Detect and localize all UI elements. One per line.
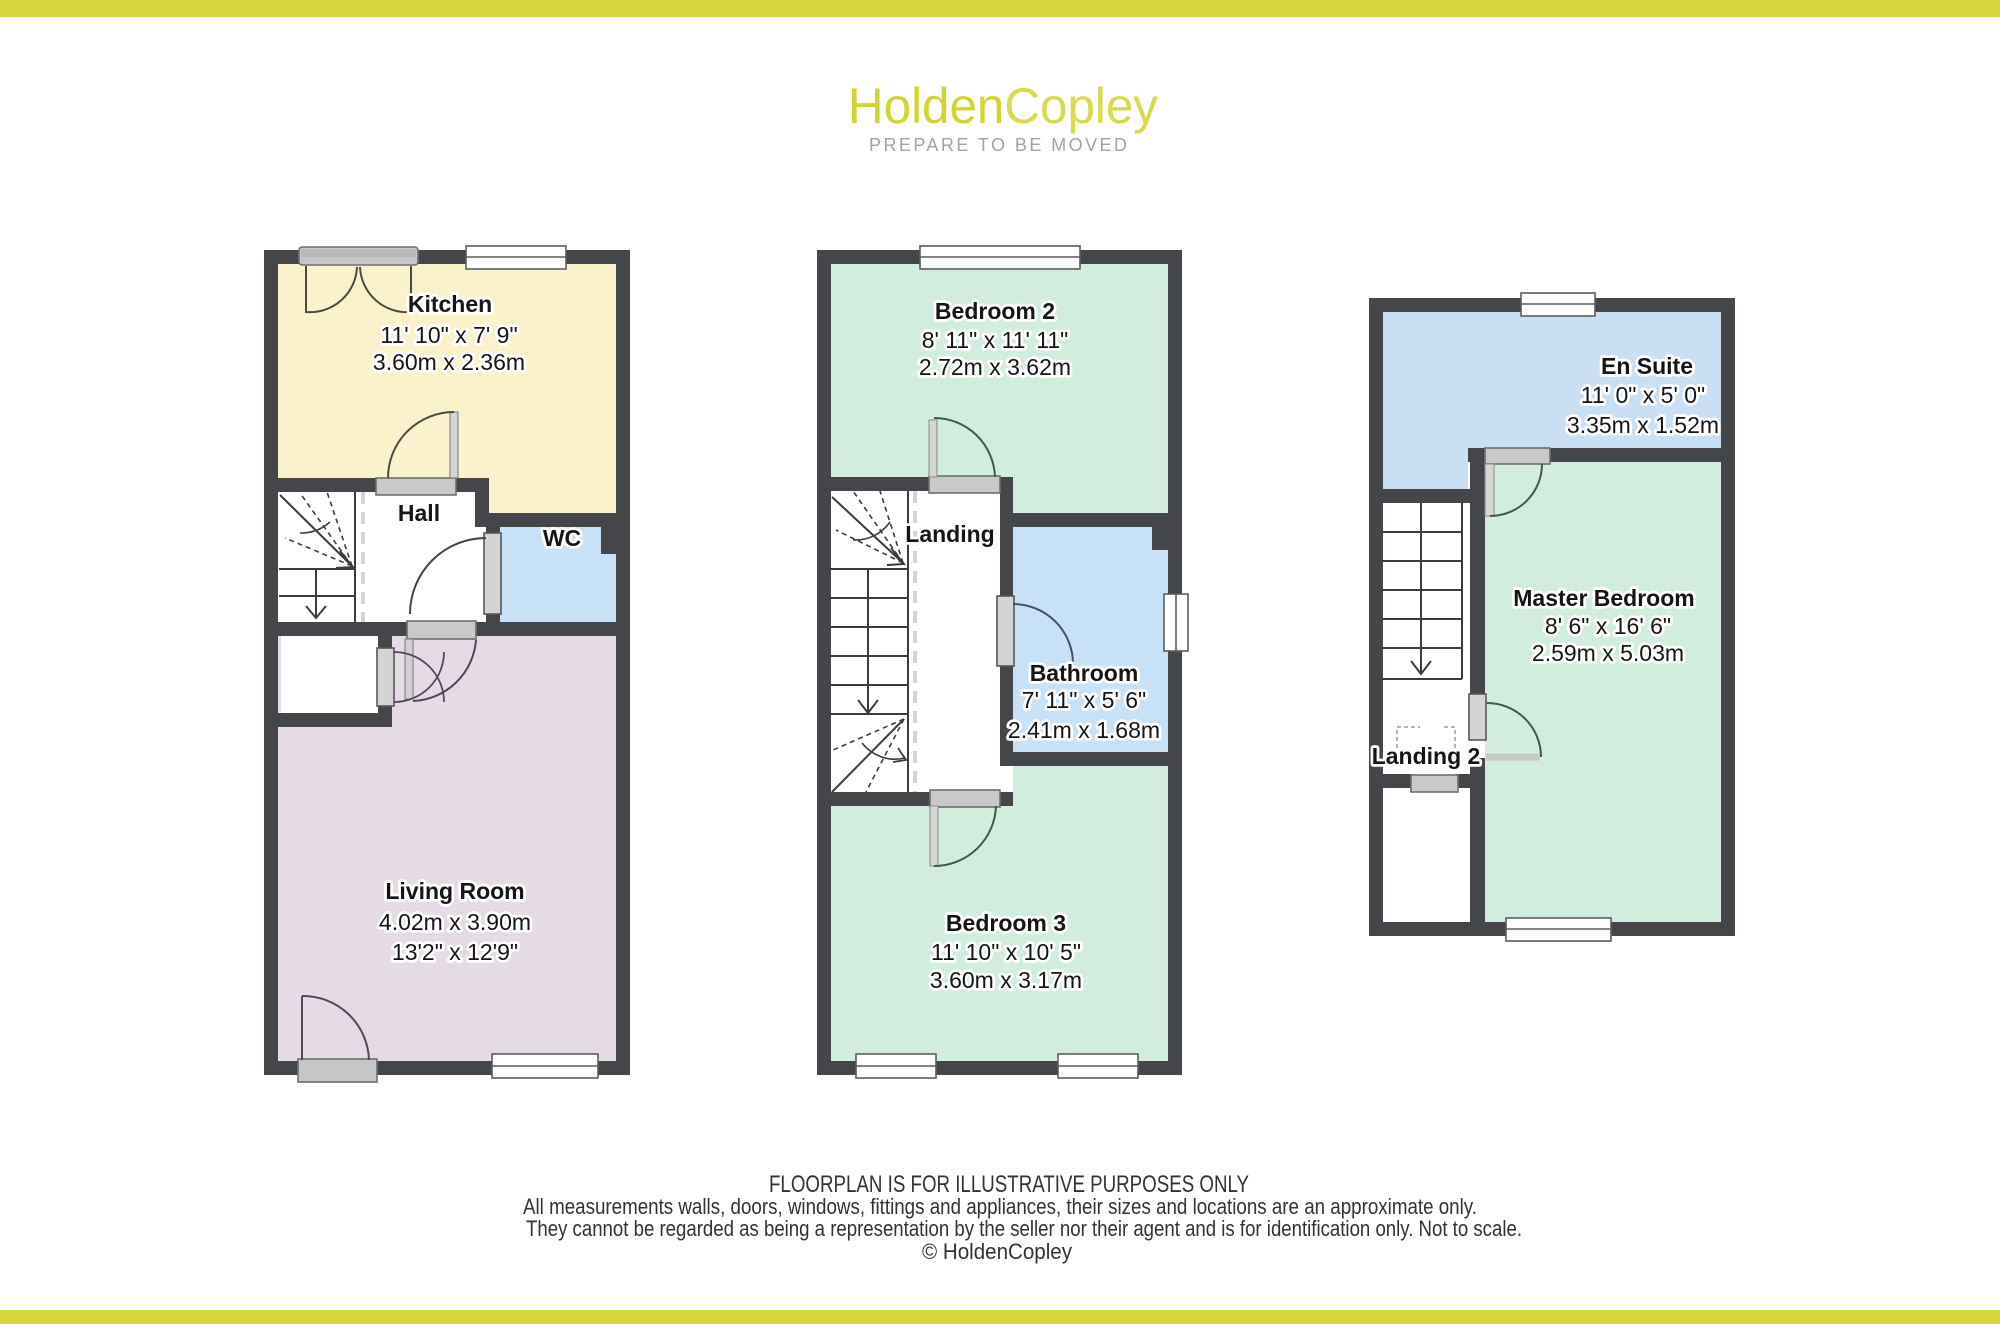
svg-text:Bedroom 2: Bedroom 2 — [935, 298, 1055, 324]
svg-text:8' 6" x 16' 6": 8' 6" x 16' 6" — [1545, 613, 1671, 639]
svg-text:En Suite: En Suite — [1601, 353, 1693, 379]
svg-text:Hall: Hall — [398, 500, 440, 526]
svg-text:PREPARE TO BE MOVED: PREPARE TO BE MOVED — [869, 135, 1127, 155]
svg-text:3.60m x 3.17m: 3.60m x 3.17m — [930, 967, 1082, 993]
svg-text:Bathroom: Bathroom — [1030, 660, 1139, 686]
svg-text:8' 11" x 11' 11": 8' 11" x 11' 11" — [922, 327, 1069, 353]
svg-text:2.41m x 1.68m: 2.41m x 1.68m — [1008, 717, 1160, 743]
svg-text:Living Room: Living Room — [385, 878, 524, 904]
svg-text:Kitchen: Kitchen — [408, 291, 492, 317]
svg-text:13'2" x 12'9": 13'2" x 12'9" — [392, 939, 518, 965]
svg-text:2.59m x 5.03m: 2.59m x 5.03m — [1532, 640, 1684, 666]
svg-text:4.02m x 3.90m: 4.02m x 3.90m — [379, 909, 531, 935]
svg-text:HoldenCopley: HoldenCopley — [848, 78, 1158, 134]
svg-text:Landing 2: Landing 2 — [1372, 743, 1481, 769]
svg-text:2.72m x 3.62m: 2.72m x 3.62m — [919, 354, 1071, 380]
svg-text:Landing: Landing — [905, 521, 994, 547]
svg-text:They cannot be regarded as bei: They cannot be regarded as being a repre… — [526, 1216, 1522, 1241]
svg-text:7' 11" x 5' 6": 7' 11" x 5' 6" — [1022, 687, 1146, 713]
svg-text:11' 10" x 7' 9": 11' 10" x 7' 9" — [380, 322, 517, 348]
svg-text:11' 0" x 5' 0": 11' 0" x 5' 0" — [1581, 382, 1705, 408]
svg-text:3.60m x 2.36m: 3.60m x 2.36m — [373, 349, 525, 375]
svg-text:11' 10" x 10' 5": 11' 10" x 10' 5" — [931, 939, 1081, 965]
svg-text:© HoldenCopley: © HoldenCopley — [922, 1239, 1072, 1264]
svg-text:Master Bedroom: Master Bedroom — [1513, 585, 1694, 611]
svg-text:Bedroom 3: Bedroom 3 — [946, 910, 1066, 936]
svg-text:WC: WC — [543, 525, 581, 551]
svg-text:3.35m x 1.52m: 3.35m x 1.52m — [1567, 412, 1719, 438]
